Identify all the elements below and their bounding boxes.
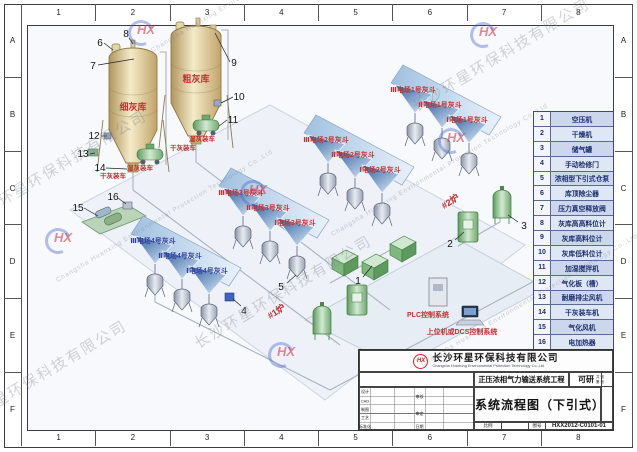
callout-11: 11 (228, 115, 239, 126)
project-name: 正压浓相气力输送系统工程 (474, 372, 569, 387)
callout-8: 8 (123, 29, 129, 40)
legend-row: 15气化风机 (534, 320, 613, 335)
legend-row: 1空压机 (534, 112, 613, 127)
drawing-title: 系统流程图（下引式） (474, 387, 601, 422)
air-dryer (458, 212, 478, 242)
number-label: 图号 (529, 423, 546, 429)
legend-row: 5浓相型下引式仓泵 (534, 172, 613, 187)
callout-5: 5 (278, 282, 284, 293)
air-receiver-tank (313, 302, 331, 340)
svg-text:Ⅲ电场1号灰斗: Ⅲ电场1号灰斗 (390, 85, 436, 94)
dry-loading-label: 干灰装车 (100, 171, 127, 180)
company-name-en: Changsha Huanxing Environmental Protecti… (432, 364, 558, 369)
wet-loading-label: 湿灰装车 (127, 163, 154, 172)
air-receiver-tank (493, 186, 511, 224)
svg-text:Ⅰ电场2号灰斗: Ⅰ电场2号灰斗 (359, 165, 401, 174)
stage-label: 可研 (578, 374, 594, 385)
dry-loading-label: 干灰装车 (170, 143, 197, 152)
callout-10: 10 (233, 92, 245, 103)
callout-4: 4 (241, 306, 247, 317)
legend-row: 9灰库高料位计 (534, 231, 613, 246)
svg-text:Ⅱ电场1号灰斗: Ⅱ电场1号灰斗 (418, 100, 462, 109)
callout-1: 1 (355, 276, 361, 287)
scale-label: 比例 (475, 423, 502, 429)
sign-row-label: CAD (361, 398, 369, 403)
manual-maintenance-door (225, 293, 234, 301)
callout-12: 12 (88, 131, 100, 142)
legend-row: 3储气罐 (534, 142, 613, 157)
legend-row: 11加湿搅拌机 (534, 261, 613, 276)
plc-label: PLC控制系统 (407, 310, 449, 319)
legend-row: 8灰库高高料位计 (534, 216, 613, 231)
callout-2: 2 (447, 239, 453, 250)
title-block: HX 长沙环星环保科技有限公司 Changsha Huanxing Enviro… (358, 349, 614, 431)
svg-text:Ⅲ电场4号灰斗: Ⅲ电场4号灰斗 (130, 236, 176, 245)
low-level-gauge (214, 100, 221, 106)
svg-text:Ⅱ电场4号灰斗: Ⅱ电场4号灰斗 (158, 251, 202, 260)
legend-row: 6库顶除尘器 (534, 186, 613, 201)
audit-label: 审核 (416, 394, 424, 400)
drawing-number: HXX2012-C0101-01 (546, 423, 612, 429)
title-block-blank-cell (359, 372, 474, 387)
title-block-right-column (601, 372, 613, 422)
dcs-label: 上位机或DCS控制系统 (427, 327, 498, 336)
callout-6: 6 (97, 38, 103, 49)
sign-row-label: 设计 (361, 389, 369, 395)
drawing-number-row: 比例 图号 HXX2012-C0101-01 (474, 422, 613, 430)
legend-row: 14干灰装车机 (534, 305, 613, 320)
wet-loading-label: 湿灰装车 (189, 134, 216, 143)
company-name-cn: 长沙环星环保科技有限公司 (432, 354, 558, 364)
svg-text:Ⅰ电场1号灰斗: Ⅰ电场1号灰斗 (446, 115, 488, 124)
sign-row-label: 工艺 (361, 415, 369, 421)
signature-grid: 设计 CAD 制图 工艺 标准化 审核 审定 日期 (359, 387, 474, 430)
company-logo: HX (413, 354, 428, 369)
legend-row: 4手动检修门 (534, 157, 613, 172)
air-dryer (347, 285, 367, 315)
svg-text:Ⅰ电场4号灰斗: Ⅰ电场4号灰斗 (186, 266, 228, 275)
legend-row: 12气化板（槽） (534, 276, 613, 291)
audit-label: 审定 (416, 411, 424, 417)
legend-row: 7压力真空释放阀 (534, 201, 613, 216)
dust-exhaust-fan (88, 149, 98, 156)
callout-16: 16 (107, 192, 119, 203)
callout-3: 3 (521, 221, 527, 232)
coarse-silo-label: 粗灰库 (182, 73, 209, 84)
callout-7: 7 (90, 61, 96, 72)
callout-13: 13 (77, 149, 89, 160)
audit-label: 日期 (416, 424, 424, 430)
legend-row: 16电加热器 (534, 335, 613, 349)
sign-row-label: 标准化 (359, 424, 371, 430)
svg-text:Ⅱ电场2号灰斗: Ⅱ电场2号灰斗 (331, 150, 375, 159)
svg-text:Ⅲ电场2号灰斗: Ⅲ电场2号灰斗 (303, 135, 349, 144)
callout-9: 9 (231, 58, 237, 69)
plc-cabinet (429, 278, 447, 306)
company-header: HX 长沙环星环保科技有限公司 Changsha Huanxing Enviro… (359, 350, 613, 372)
sign-row-label: 制图 (361, 407, 369, 413)
legend-row: 2干燥机 (534, 127, 613, 142)
scale-value (502, 423, 529, 429)
callout-15: 15 (72, 203, 84, 214)
fine-silo-label: 细灰库 (119, 101, 146, 112)
equipment-legend-table: 1空压机 2干燥机 3储气罐 4手动检修门 5浓相型下引式仓泵 6库顶除尘器 7… (533, 111, 614, 350)
legend-row: 13耐磨排尘风机 (534, 291, 613, 306)
svg-text:Ⅱ电场3号灰斗: Ⅱ电场3号灰斗 (246, 203, 290, 212)
svg-text:Ⅲ电场3号灰斗: Ⅲ电场3号灰斗 (218, 188, 264, 197)
legend-row: 10灰库低料位计 (534, 246, 613, 261)
svg-text:Ⅰ电场3号灰斗: Ⅰ电场3号灰斗 (274, 218, 316, 227)
